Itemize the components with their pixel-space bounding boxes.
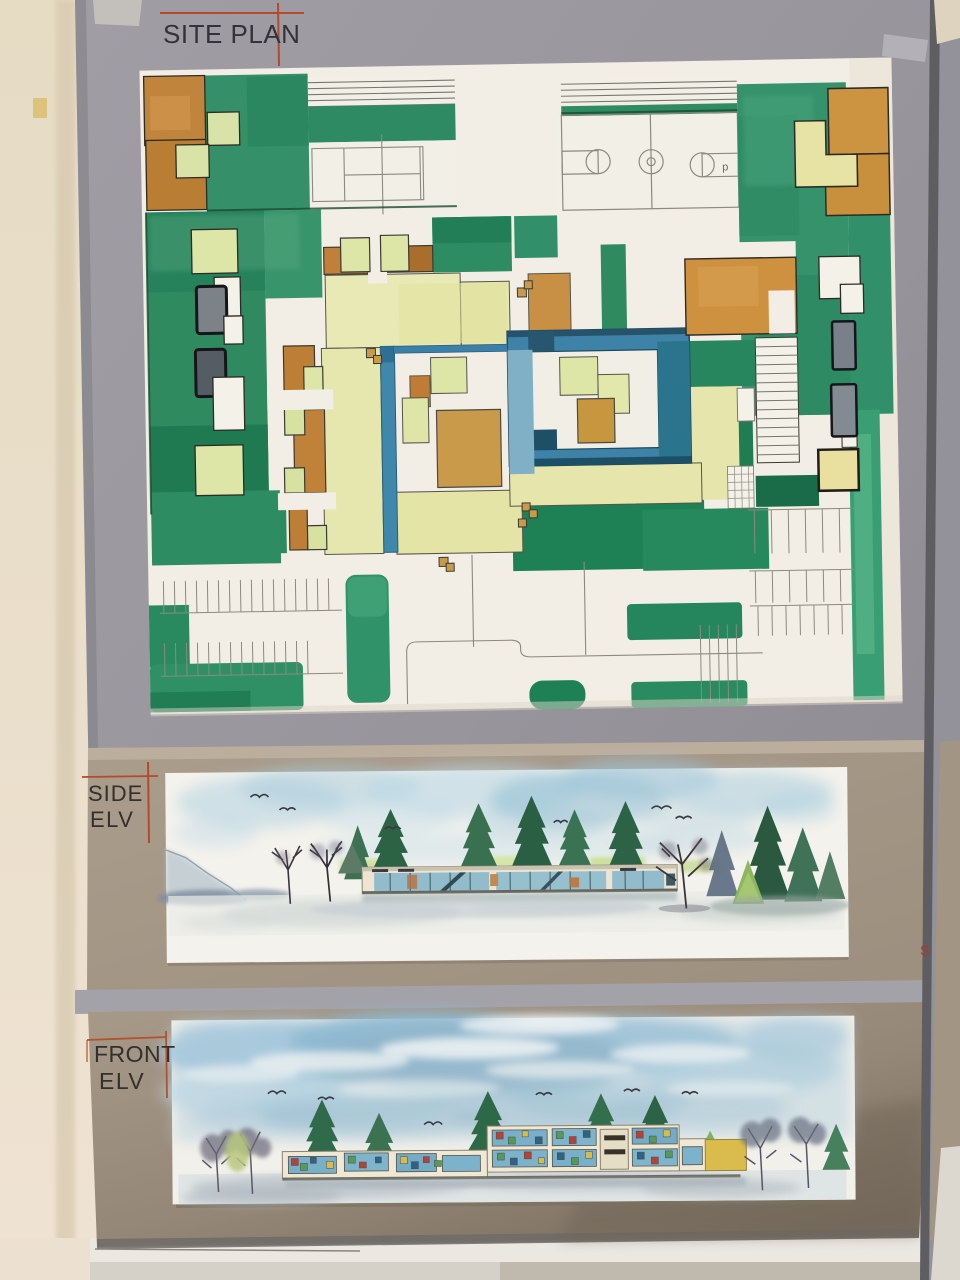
svg-text:SIDE: SIDE [88,781,143,806]
svg-text:p: p [722,161,728,173]
svg-text:ELV: ELV [99,1068,145,1094]
svg-text:S: S [920,942,929,958]
svg-text:ELV: ELV [90,807,134,832]
svg-text:FRONT: FRONT [94,1041,176,1067]
svg-text:SITE PLAN: SITE PLAN [163,19,300,49]
